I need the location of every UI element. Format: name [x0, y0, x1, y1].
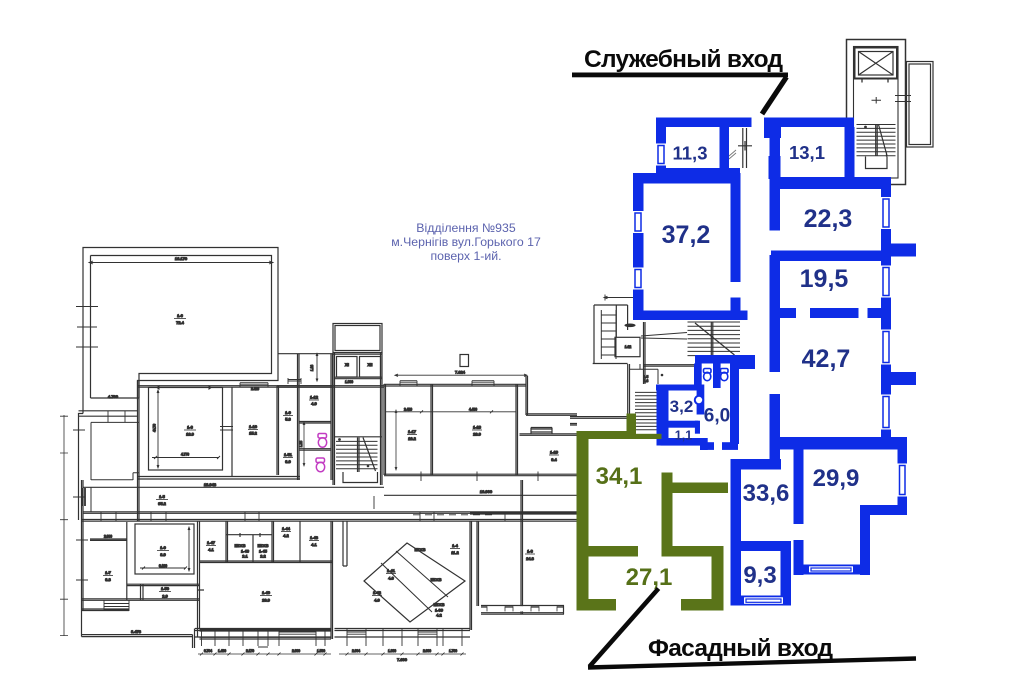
- svg-text:1,1: 1,1: [675, 429, 692, 443]
- svg-text:9,3: 9,3: [743, 562, 776, 589]
- svg-text:2.170: 2.170: [246, 649, 254, 653]
- svg-text:0.794: 0.794: [204, 649, 212, 653]
- svg-text:23.9: 23.9: [473, 432, 482, 437]
- svg-text:13,1: 13,1: [789, 142, 825, 163]
- svg-text:29,9: 29,9: [813, 465, 860, 492]
- svg-text:37,2: 37,2: [662, 221, 711, 249]
- svg-text:34,1: 34,1: [596, 463, 643, 490]
- svg-text:1-50: 1-50: [161, 586, 170, 591]
- svg-text:1-43: 1-43: [310, 535, 319, 540]
- svg-text:1-9: 1-9: [160, 545, 167, 550]
- svg-text:1-19: 1-19: [550, 450, 559, 455]
- svg-text:1-44: 1-44: [282, 526, 291, 531]
- svg-text:11,3: 11,3: [673, 143, 708, 164]
- svg-text:1-6: 1-6: [177, 313, 184, 318]
- svg-text:ХII: ХII: [345, 363, 349, 367]
- svg-text:10.900: 10.900: [480, 489, 493, 494]
- svg-text:9.4: 9.4: [551, 457, 557, 462]
- svg-text:11.2: 11.2: [451, 550, 459, 555]
- svg-text:8.9: 8.9: [160, 552, 166, 557]
- svg-text:44.76: 44.76: [153, 424, 157, 432]
- svg-text:1-40: 1-40: [262, 590, 271, 595]
- svg-text:КЛССВ: КЛССВ: [434, 603, 445, 607]
- svg-text:13.2: 13.2: [408, 436, 417, 441]
- svg-text:2.1: 2.1: [242, 554, 248, 559]
- svg-text:2.064: 2.064: [352, 649, 360, 653]
- svg-text:ХIII: ХIII: [368, 363, 373, 367]
- svg-text:16.170: 16.170: [175, 256, 188, 261]
- svg-text:2.2: 2.2: [260, 554, 266, 559]
- svg-text:КЛССВ: КЛССВ: [235, 544, 246, 548]
- svg-text:1-47: 1-47: [207, 540, 216, 545]
- svg-text:2.380: 2.380: [423, 649, 431, 653]
- svg-text:24.3: 24.3: [526, 556, 535, 561]
- svg-text:1.500: 1.500: [317, 649, 325, 653]
- svg-text:4.1: 4.1: [208, 547, 214, 552]
- svg-text:1.980: 1.980: [345, 380, 353, 384]
- svg-text:4.460: 4.460: [469, 408, 477, 412]
- svg-text:1-41: 1-41: [387, 568, 396, 573]
- svg-text:4.6: 4.6: [388, 576, 394, 581]
- svg-text:1.18: 1.18: [310, 365, 314, 371]
- svg-text:8.478: 8.478: [131, 629, 142, 634]
- svg-text:5.8: 5.8: [285, 417, 291, 422]
- svg-text:15.2: 15.2: [249, 431, 258, 436]
- svg-text:95.2: 95.2: [158, 501, 167, 506]
- svg-text:2.3: 2.3: [644, 379, 649, 383]
- svg-text:13.848: 13.848: [204, 482, 217, 487]
- svg-text:КЛССВ: КЛССВ: [415, 548, 426, 552]
- svg-text:4.9: 4.9: [311, 401, 317, 406]
- svg-text:3,2: 3,2: [670, 397, 694, 416]
- svg-text:1-17: 1-17: [408, 429, 417, 434]
- svg-text:Фасадный вход: Фасадный вход: [648, 635, 834, 662]
- svg-text:м.Чернігів вул.Горького 17: м.Чернігів вул.Горького 17: [391, 235, 541, 249]
- svg-text:18.9: 18.9: [186, 432, 195, 437]
- svg-text:3.130: 3.130: [159, 564, 167, 568]
- svg-text:4.700: 4.700: [108, 394, 119, 399]
- svg-text:КЛССВ: КЛССВ: [431, 578, 442, 582]
- svg-text:4.776: 4.776: [181, 453, 189, 457]
- svg-text:4.1: 4.1: [311, 542, 317, 547]
- svg-text:2.420: 2.420: [404, 408, 412, 412]
- svg-text:6,0: 6,0: [704, 406, 730, 427]
- svg-text:42,7: 42,7: [802, 345, 851, 373]
- svg-text:1.700: 1.700: [449, 649, 457, 653]
- svg-text:КЛССВ: КЛССВ: [258, 544, 269, 548]
- svg-text:1-12: 1-12: [310, 395, 319, 400]
- svg-text:1-5: 1-5: [159, 494, 166, 499]
- svg-text:2.9: 2.9: [162, 594, 168, 599]
- svg-text:3.8: 3.8: [105, 577, 111, 582]
- svg-text:22,3: 22,3: [804, 205, 853, 233]
- svg-text:1.18: 1.18: [299, 441, 303, 447]
- svg-text:1-10: 1-10: [249, 424, 258, 429]
- svg-text:4.0: 4.0: [374, 598, 380, 603]
- svg-text:7.624: 7.624: [455, 370, 466, 375]
- svg-text:1-9: 1-9: [285, 410, 292, 415]
- svg-text:4.2: 4.2: [436, 613, 442, 618]
- svg-text:2.080: 2.080: [104, 535, 112, 539]
- svg-text:поверх 1-ий.: поверх 1-ий.: [430, 249, 501, 263]
- svg-text:1-4: 1-4: [452, 543, 459, 548]
- svg-text:1-18: 1-18: [473, 425, 482, 430]
- svg-text:7.600: 7.600: [397, 657, 408, 662]
- svg-text:3.0: 3.0: [285, 459, 291, 464]
- svg-text:2.420: 2.420: [251, 387, 259, 391]
- svg-text:27,1: 27,1: [626, 564, 673, 591]
- svg-text:19,5: 19,5: [800, 265, 849, 293]
- svg-text:72.4: 72.4: [176, 320, 185, 325]
- svg-text:Відділення №935: Відділення №935: [416, 221, 516, 235]
- svg-text:1-7: 1-7: [105, 570, 112, 575]
- svg-text:1-22: 1-22: [625, 345, 632, 349]
- svg-text:Служебный вход: Служебный вход: [584, 46, 784, 73]
- svg-text:1-3: 1-3: [527, 549, 534, 554]
- svg-text:1-8: 1-8: [187, 425, 194, 430]
- svg-text:1-51: 1-51: [284, 452, 293, 457]
- svg-text:1-42: 1-42: [373, 590, 382, 595]
- svg-text:1.400: 1.400: [218, 649, 226, 653]
- svg-text:33,6: 33,6: [743, 480, 790, 507]
- svg-text:2.080: 2.080: [292, 649, 300, 653]
- svg-text:20.9: 20.9: [262, 598, 271, 603]
- svg-text:4.2: 4.2: [283, 533, 289, 538]
- svg-text:1.800: 1.800: [388, 649, 396, 653]
